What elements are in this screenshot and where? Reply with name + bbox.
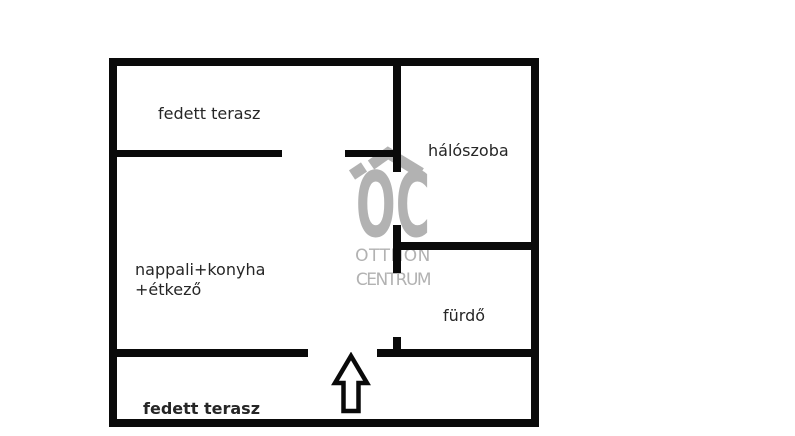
wall-terrace-bottom-divider-right <box>377 349 539 357</box>
entrance-arrow-icon <box>330 352 374 416</box>
wall-bedroom-bathroom-divider <box>393 242 539 250</box>
room-label-living-line1: nappali+konyha <box>135 260 265 280</box>
room-label-bathroom: fürdő <box>443 306 485 326</box>
wall-terrace-top-divider-left <box>109 150 282 157</box>
room-label-living-kitchen-dining: nappali+konyha +étkező <box>135 260 265 300</box>
room-label-bedroom: hálószoba <box>428 141 509 161</box>
wall-terrace-bottom-divider-left <box>109 349 308 357</box>
wall-terrace-top-divider-right <box>345 150 401 157</box>
walls-layer <box>0 0 795 436</box>
room-label-terrace-top: fedett terasz <box>158 104 260 124</box>
wall-outer-top <box>109 58 539 66</box>
room-label-terrace-bottom: fedett terasz <box>143 399 260 419</box>
wall-outer-left <box>109 58 117 427</box>
room-label-living-line2: +étkező <box>135 280 265 300</box>
wall-outer-bottom <box>109 419 539 427</box>
floor-plan: OC OTTHON CENTRUM fedett terasz hálószob… <box>0 0 795 436</box>
